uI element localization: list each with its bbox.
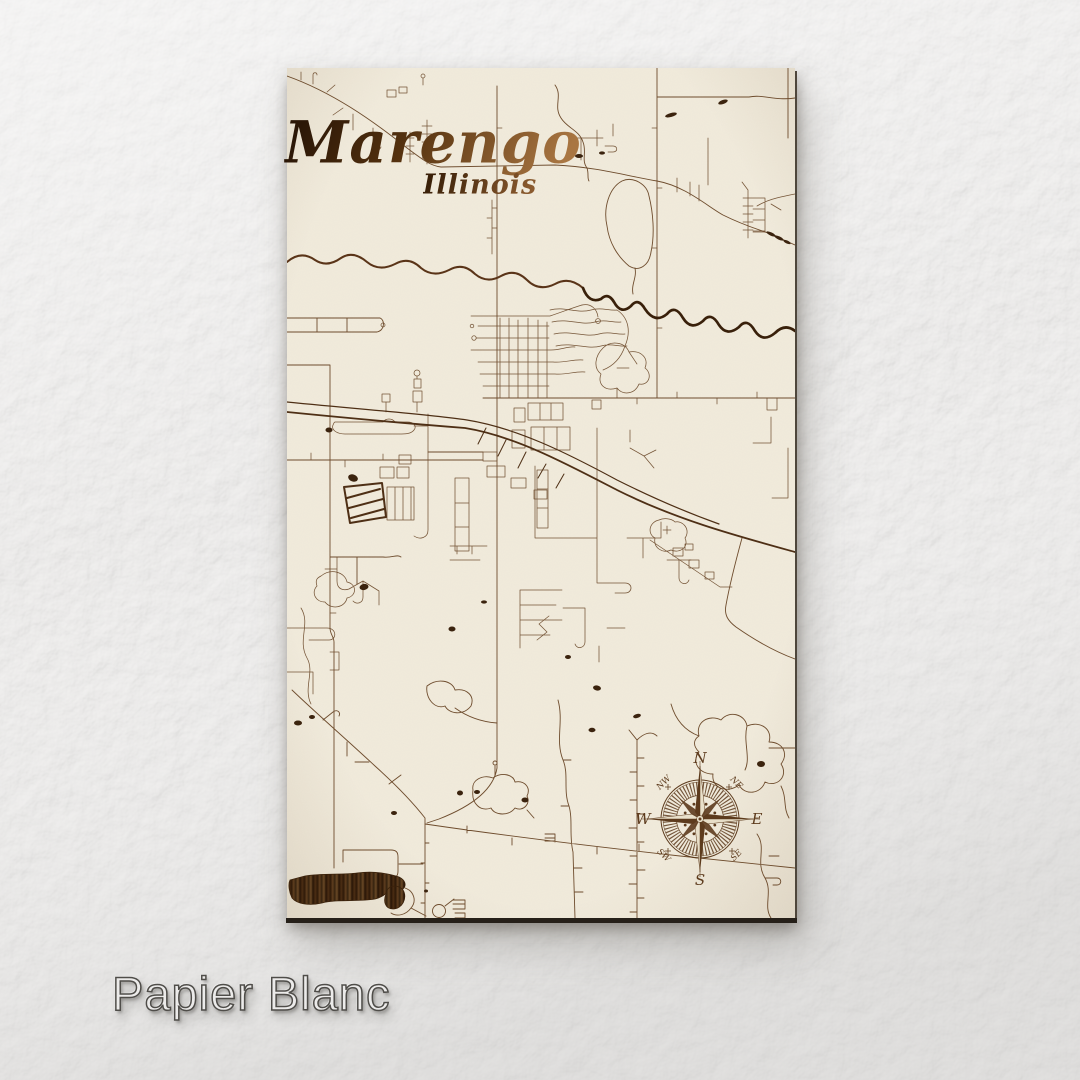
map-title: Marengo bbox=[284, 109, 582, 177]
finish-name-label: Papier Blanc bbox=[112, 966, 391, 1021]
product-photo: N S E W NW NE SE SW Marengo Illinois Pap… bbox=[0, 0, 1080, 1080]
street-map-engraving: N S E W NW NE SE SW bbox=[287, 68, 795, 918]
wood-map-panel: N S E W NW NE SE SW Marengo Illinois bbox=[287, 68, 795, 918]
map-subtitle: Illinois bbox=[423, 170, 538, 201]
map-vignette bbox=[287, 68, 795, 918]
